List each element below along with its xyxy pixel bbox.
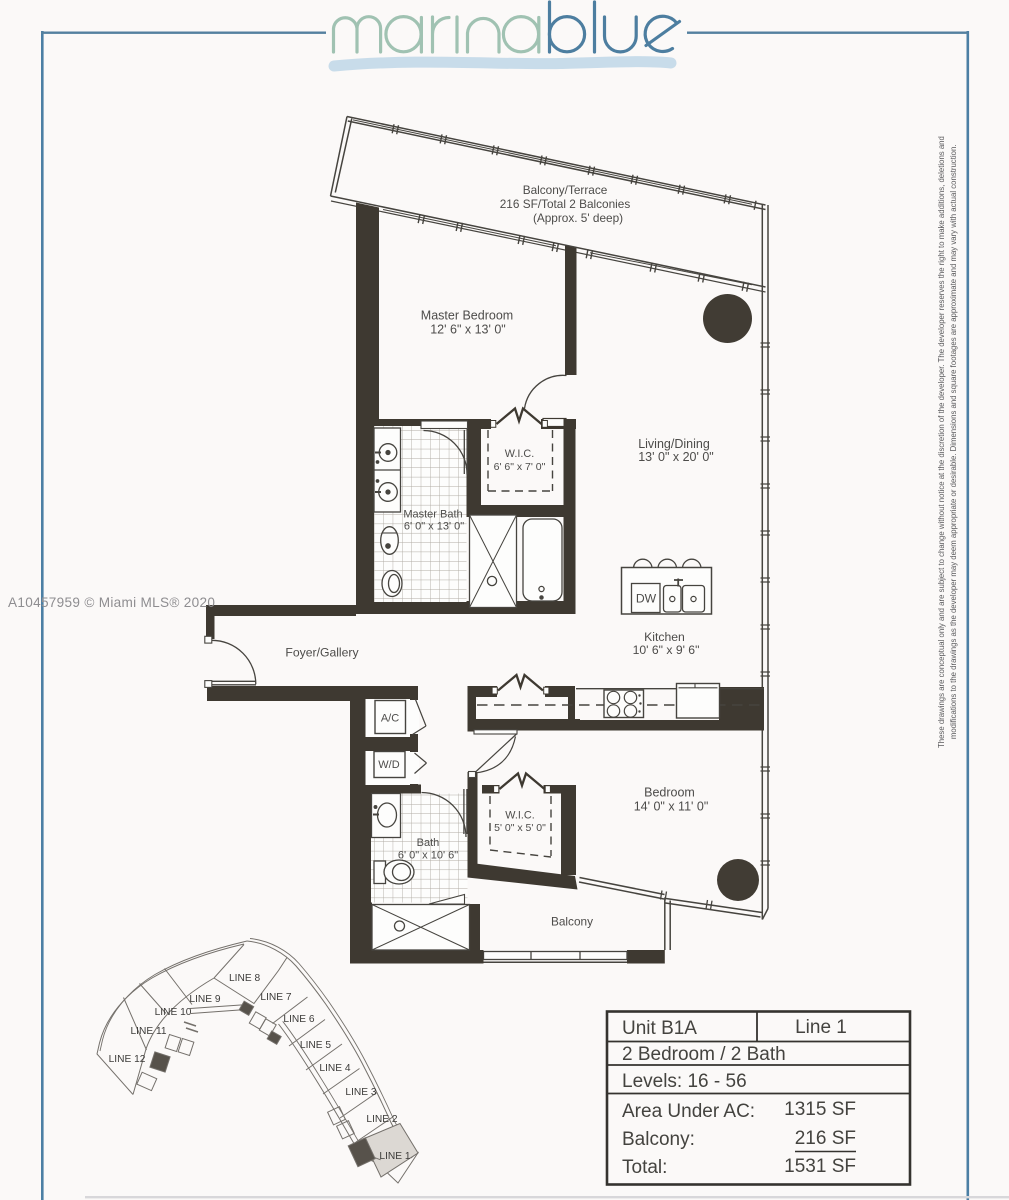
svg-text:Living/Dining: Living/Dining [638,437,710,451]
svg-text:LINE 1: LINE 1 [379,1151,410,1162]
svg-text:These drawings are conceptual: These drawings are conceptual only and a… [937,136,946,748]
svg-text:A10457959 © Miami MLS® 2020: A10457959 © Miami MLS® 2020 [8,595,215,610]
svg-text:DW: DW [636,592,657,606]
svg-text:A/C: A/C [381,713,399,725]
svg-text:Balcony: Balcony [551,915,593,929]
svg-text:W.I.C.: W.I.C. [505,448,534,460]
svg-text:Line 1: Line 1 [795,1017,847,1038]
svg-text:1315 SF: 1315 SF [784,1099,856,1120]
svg-text:Foyer/Gallery: Foyer/Gallery [285,646,359,660]
svg-text:W/D: W/D [378,759,399,771]
svg-text:1531 SF: 1531 SF [784,1156,856,1177]
svg-text:LINE 9: LINE 9 [189,994,220,1005]
svg-text:LINE 10: LINE 10 [155,1007,192,1018]
svg-text:14' 0" x 11' 0": 14' 0" x 11' 0" [634,800,709,814]
svg-text:6' 0" x 10' 6": 6' 0" x 10' 6" [398,850,458,862]
svg-text:216 SF/Total 2 Balconies: 216 SF/Total 2 Balconies [500,197,631,211]
svg-text:Levels: 16 - 56: Levels: 16 - 56 [622,1071,747,1092]
svg-text:216 SF: 216 SF [795,1128,856,1149]
svg-text:Balcony/Terrace: Balcony/Terrace [523,183,608,197]
svg-text:(Approx. 5' deep): (Approx. 5' deep) [533,211,623,225]
svg-text:LINE 3: LINE 3 [345,1087,376,1098]
svg-text:6' 6" x 7' 0": 6' 6" x 7' 0" [494,461,546,473]
svg-text:LINE 11: LINE 11 [130,1026,166,1037]
svg-text:LINE 5: LINE 5 [300,1040,331,1051]
svg-text:2 Bedroom / 2 Bath: 2 Bedroom / 2 Bath [622,1044,786,1065]
svg-text:W.I.C.: W.I.C. [505,810,534,822]
svg-text:Balcony:: Balcony: [622,1129,695,1150]
svg-text:LINE 8: LINE 8 [229,973,260,984]
svg-text:6' 0" x 13' 0": 6' 0" x 13' 0" [404,521,464,533]
svg-text:Bedroom: Bedroom [644,786,695,800]
svg-text:LINE 12: LINE 12 [109,1054,146,1065]
svg-text:LINE 2: LINE 2 [366,1114,397,1125]
svg-text:Total:: Total: [622,1157,667,1178]
svg-text:5' 0" x 5' 0": 5' 0" x 5' 0" [494,822,546,834]
svg-text:LINE 4: LINE 4 [319,1063,350,1074]
svg-text:Kitchen: Kitchen [644,630,685,644]
svg-text:Master Bath: Master Bath [403,509,462,521]
svg-text:Area Under AC:: Area Under AC: [622,1101,755,1122]
svg-text:Unit B1A: Unit B1A [622,1018,697,1039]
svg-text:modifications to the drawings: modifications to the drawings as the dev… [949,145,958,750]
svg-text:Bath: Bath [417,837,440,849]
svg-text:LINE 7: LINE 7 [260,992,291,1003]
svg-text:13' 0" x 20' 0": 13' 0" x 20' 0" [638,450,714,464]
svg-text:LINE 6: LINE 6 [283,1014,314,1025]
svg-text:Master Bedroom: Master Bedroom [421,309,513,323]
svg-text:12' 6" x 13' 0": 12' 6" x 13' 0" [430,323,506,337]
svg-text:10' 6" x 9' 6": 10' 6" x 9' 6" [633,643,700,657]
